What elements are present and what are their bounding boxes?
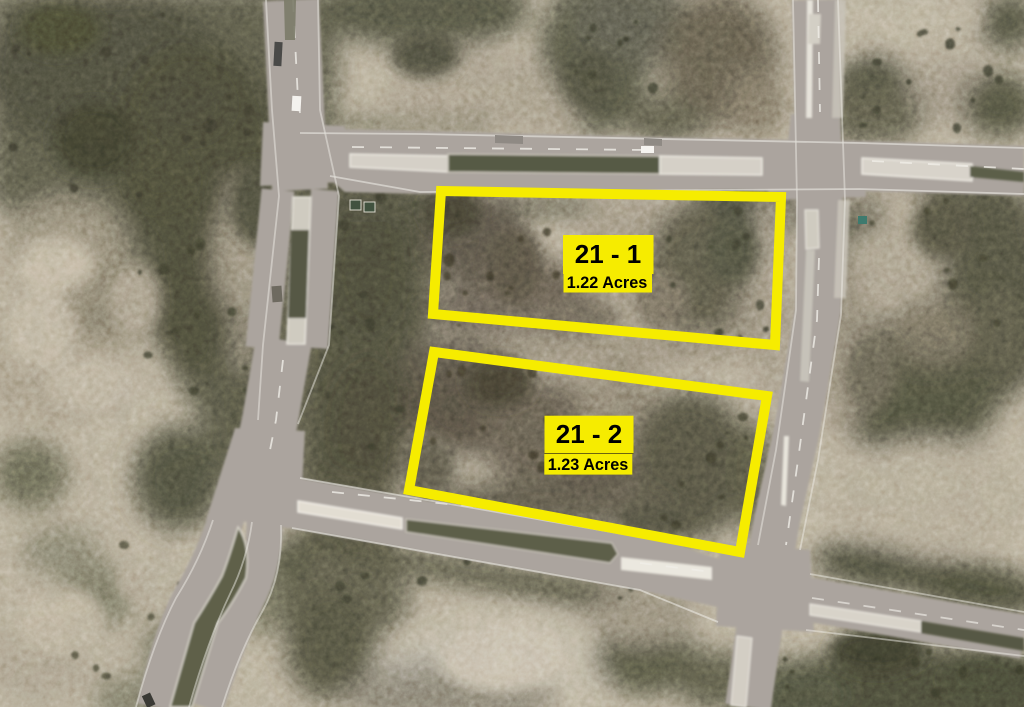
svg-text:1.22 Acres: 1.22 Acres [567,274,647,292]
svg-text:21 - 2: 21 - 2 [556,419,623,449]
svg-text:21 - 1: 21 - 1 [575,239,642,269]
svg-text:1.23 Acres: 1.23 Acres [548,456,628,474]
